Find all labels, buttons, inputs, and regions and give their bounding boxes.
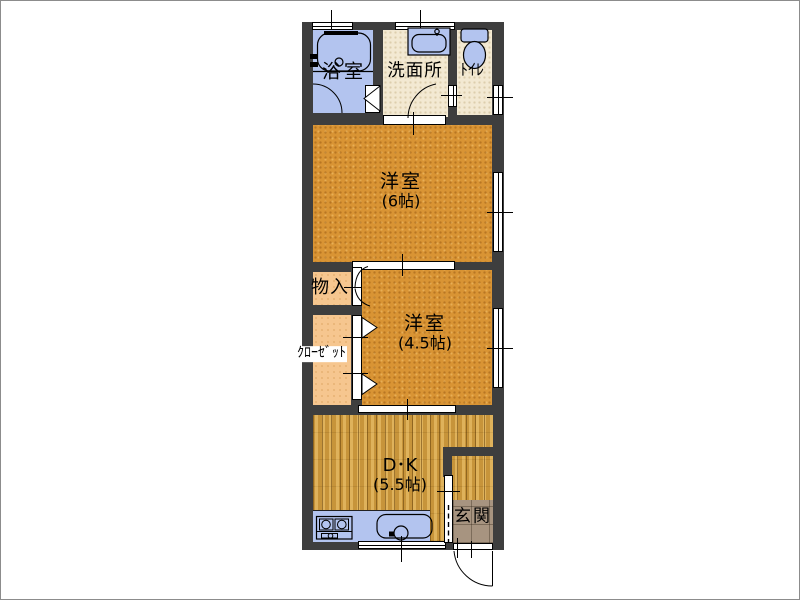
- label-bedroom6-size: (6帖): [380, 193, 422, 211]
- label-bedroom45-size: (4.5帖): [398, 335, 452, 353]
- bath-tap-icon: [310, 62, 318, 67]
- stove-burner-icon: [338, 520, 347, 529]
- label-dk-name: D･K: [383, 455, 418, 476]
- label-bedroom6-name: 洋室: [380, 170, 422, 192]
- entrance-door-arc: [454, 551, 493, 586]
- kitchen-drain: [389, 532, 394, 537]
- kitchen-sink-icon: [377, 515, 432, 539]
- washbasin-faucet-icon: [435, 29, 439, 33]
- label-bedroom45-name: 洋室: [404, 312, 446, 334]
- stove-burner-icon: [322, 520, 331, 529]
- bath-door-arc: [313, 84, 342, 113]
- storage-door-arc: [355, 267, 368, 288]
- bath-folding-door-icon: [364, 86, 380, 111]
- label-bedroom45: 洋室 (4.5帖): [398, 313, 452, 352]
- label-bedroom6: 洋室 (6帖): [380, 171, 422, 210]
- label-bath: 浴室: [322, 61, 366, 82]
- bath-tap-icon: [310, 54, 318, 59]
- label-entrance: 玄関: [454, 507, 492, 526]
- label-toilet: ﾄｲﾚ: [460, 61, 484, 79]
- toilet-tank-icon: [461, 29, 488, 42]
- fixtures-overlay: [0, 0, 800, 600]
- label-dining-kitchen: D･K (5.5帖): [373, 456, 427, 494]
- washroom-door-arc: [408, 84, 436, 118]
- label-washroom: 洗面所: [387, 62, 443, 82]
- closet-folding-door-icon: [362, 374, 377, 395]
- floorplan-canvas: 浴室 洗面所 ﾄｲﾚ 洋室 (6帖) 物入 ｸﾛｰｾﾞｯﾄ 洋室 (4.5帖) …: [0, 0, 800, 600]
- label-storage: 物入: [311, 278, 349, 298]
- closet-folding-door-icon: [362, 318, 377, 339]
- label-closet: ｸﾛｰｾﾞｯﾄ: [296, 346, 347, 362]
- stove-knob: [328, 534, 333, 539]
- bathtub-edge: [324, 31, 358, 35]
- storage-door-arc: [355, 289, 370, 307]
- label-dk-size: (5.5帖): [373, 476, 427, 494]
